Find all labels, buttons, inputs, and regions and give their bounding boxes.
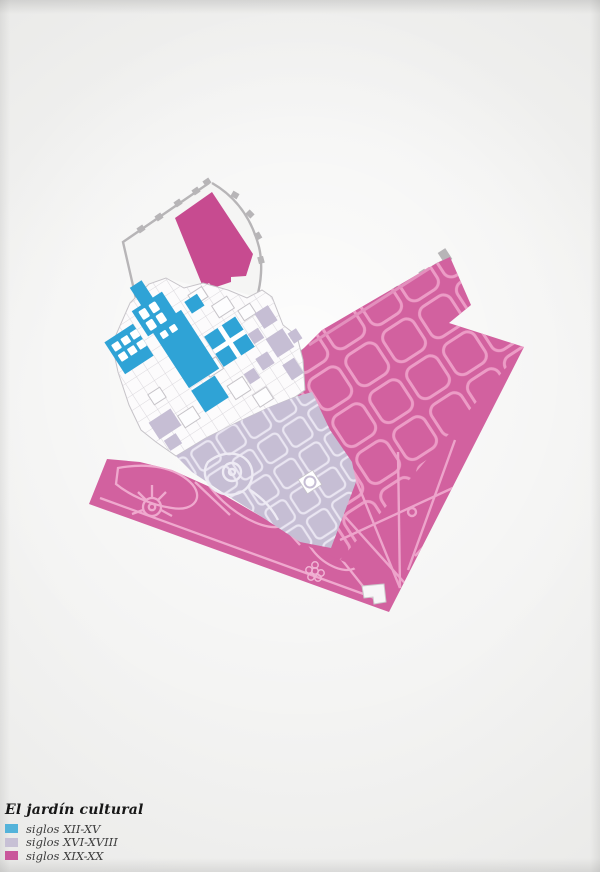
legend-swatch-xix-xx <box>5 851 18 860</box>
legend-item-xii-xv: siglos XII-XV <box>5 822 144 836</box>
legend-swatch-xii-xv <box>5 824 18 833</box>
legend-title: El jardín cultural <box>5 802 144 818</box>
legend-label-xii-xv: siglos XII-XV <box>26 822 100 836</box>
legend-label-xvi-xviii: siglos XVI-XVIII <box>26 835 118 849</box>
legend-item-xix-xx: siglos XIX-XX <box>5 849 144 863</box>
legend-label-xix-xx: siglos XIX-XX <box>26 849 103 863</box>
legend-item-xvi-xviii: siglos XVI-XVIII <box>5 836 144 850</box>
legend: El jardín cultural siglos XII-XV siglos … <box>5 802 144 863</box>
legend-swatch-xvi-xviii <box>5 838 18 847</box>
poster: El jardín cultural siglos XII-XV siglos … <box>0 0 600 872</box>
historic-garden-map <box>0 0 600 872</box>
